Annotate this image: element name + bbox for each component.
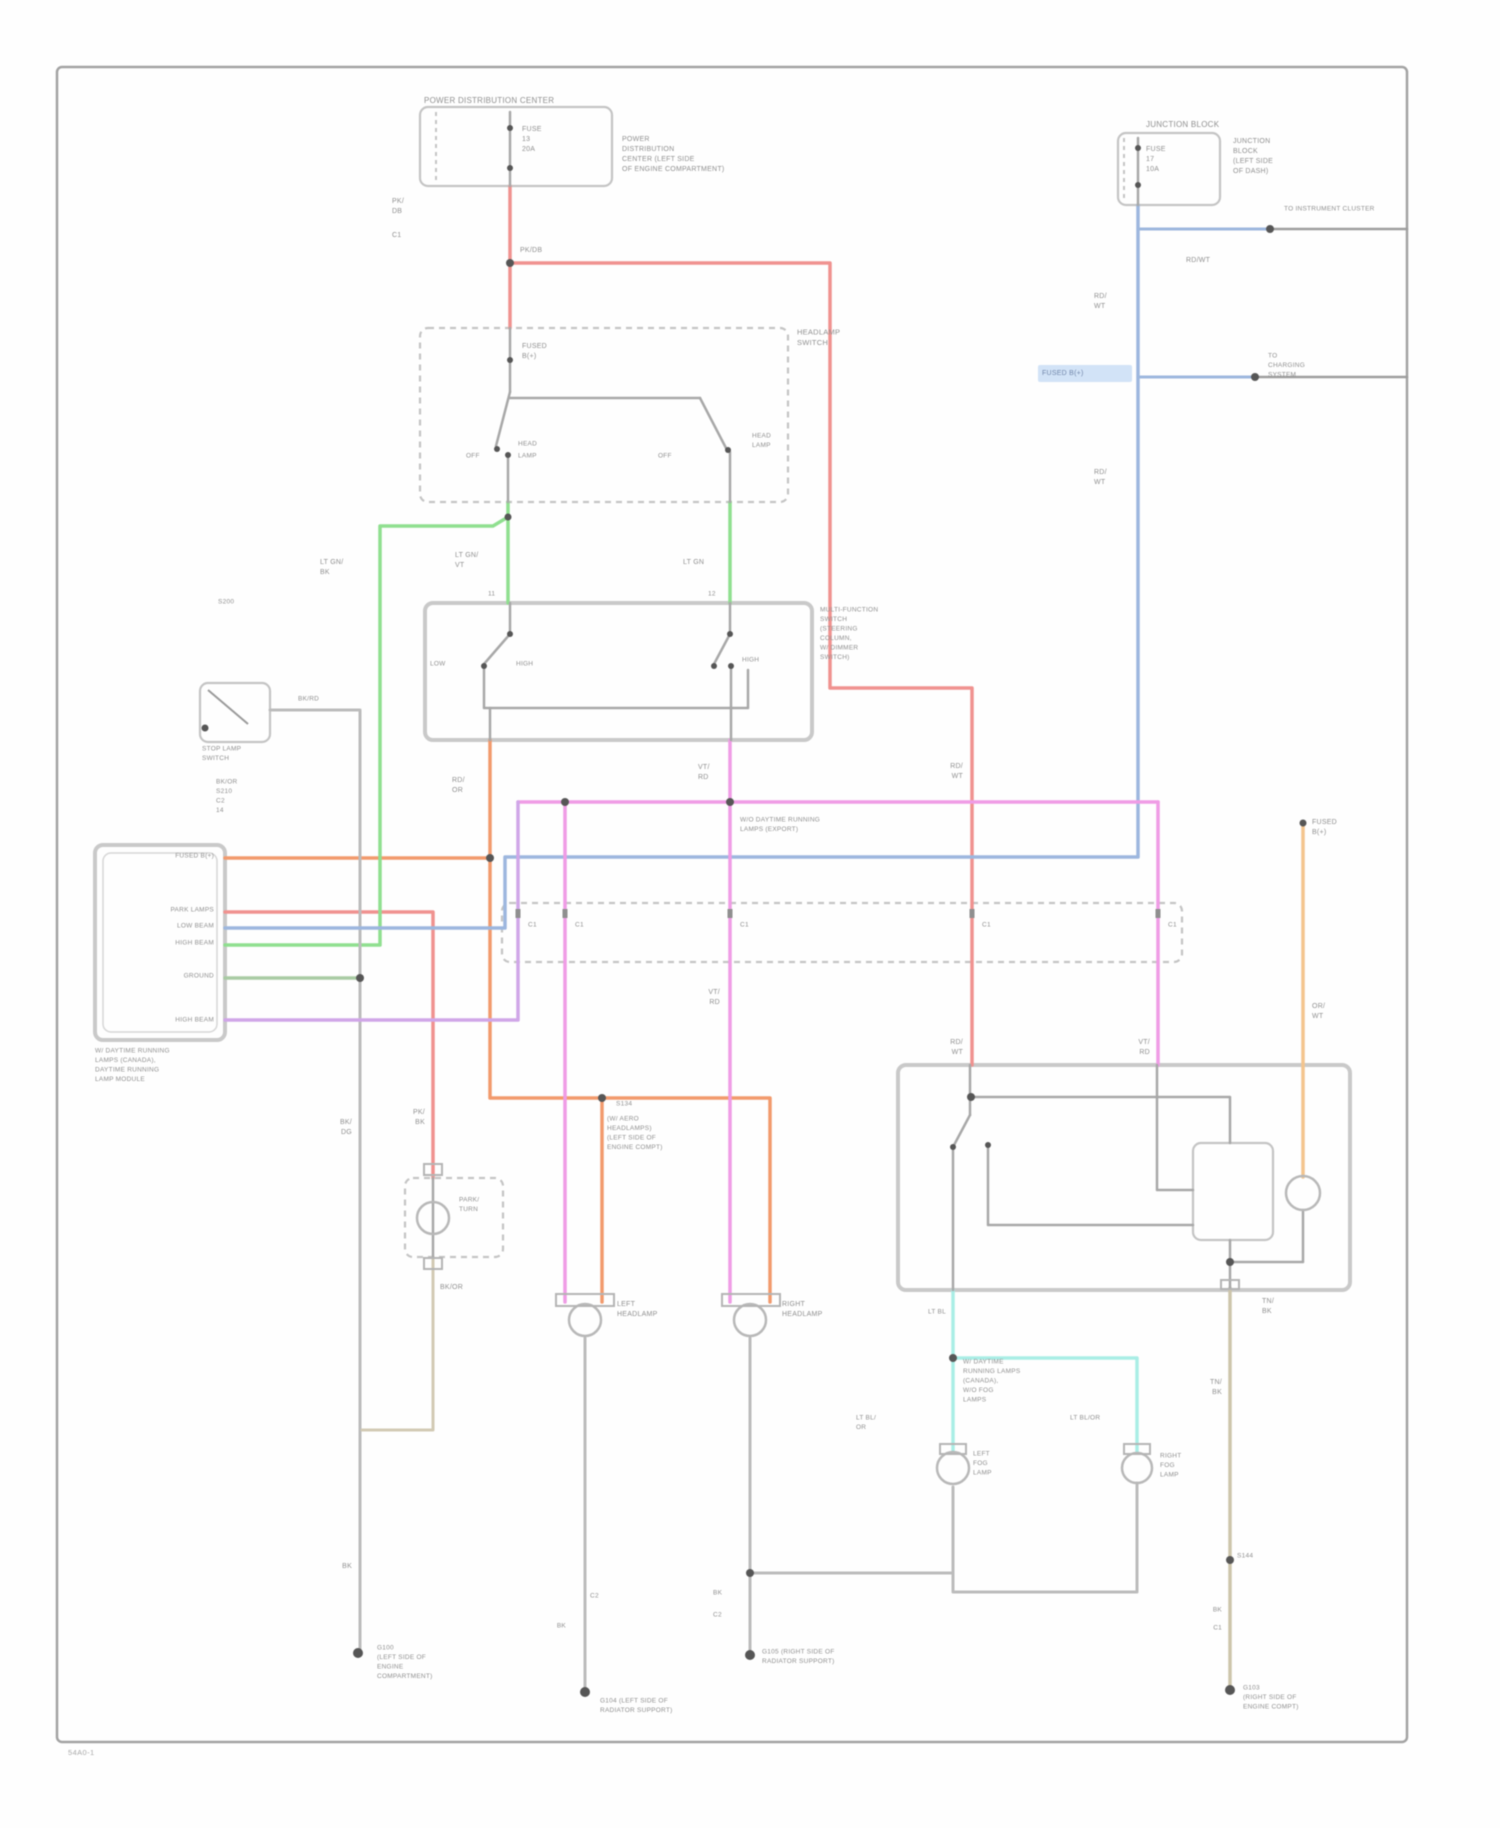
diagram-label-51-3: LAMP MODULE	[95, 1076, 145, 1083]
diagram-label-58-0: BK/OR	[440, 1284, 463, 1291]
diagram-label-56-1: DG	[341, 1129, 352, 1136]
diagram-label-24-0: LT GN	[683, 559, 704, 566]
diagram-label-62-0: S134	[616, 1101, 632, 1108]
diagram-label-19-0: LAMP	[518, 453, 537, 460]
diagram-label-63-1: HEADLAMPS)	[607, 1125, 652, 1132]
diagram-label-57-0: PK/	[413, 1109, 425, 1116]
diagram-label-40-0: RD/	[950, 763, 963, 770]
diagram-label-83-0: G103	[1243, 1685, 1260, 1692]
wire-blue-main	[225, 205, 1138, 928]
diagram-label-12-1: WT	[1094, 479, 1106, 486]
diagram-label-78-0: TN/	[1262, 1298, 1274, 1305]
diagram-label-66-0: C2	[590, 1593, 599, 1600]
diagram-label-53-0: STOP LAMP	[202, 746, 241, 753]
diagram-label-3-1: DB	[392, 208, 402, 215]
junction-dot-5	[356, 974, 364, 982]
wire-tan-park-out	[362, 1257, 433, 1430]
diagram-label-7-3: OF DASH)	[1233, 168, 1268, 175]
diagram-label-25-0: MULTI-FUNCTION	[820, 607, 878, 614]
wire-mfs-int-3	[484, 668, 748, 708]
junction-dot-27	[985, 1142, 991, 1148]
diagram-label-76-1: FOG	[973, 1460, 988, 1467]
diagram-label-72-0: LT BL	[928, 1309, 946, 1316]
diagram-label-64-1: HEADLAMP	[617, 1311, 658, 1318]
wire-fog-int-4	[988, 1145, 1193, 1225]
diagram-label-32-0: VT/	[698, 764, 710, 771]
diagram-label-15-0: HEADLAMP	[797, 328, 840, 337]
diagram-label-52-3: 14	[216, 807, 224, 814]
diagram-label-44-1: WT	[1312, 1013, 1324, 1020]
junction-dot-28	[950, 1144, 956, 1150]
diagram-label-50-0: HIGH BEAM	[175, 1017, 214, 1024]
diagram-label-83-2: ENGINE COMPT)	[1243, 1704, 1299, 1711]
diagram-label-82-0: C1	[1213, 1625, 1222, 1632]
diagram-label-30-0: HIGH	[742, 657, 759, 664]
diagram-label-57-1: BK	[415, 1119, 425, 1126]
diagram-label-11-0: RD/	[1094, 293, 1107, 300]
diagram-label-73-3: W/O FOG	[963, 1387, 994, 1394]
diagram-label-69-0: C2	[713, 1612, 722, 1619]
diagram-label-77-2: LAMP	[1160, 1472, 1179, 1479]
diagram-label-51-2: DAYTIME RUNNING	[95, 1067, 159, 1074]
page-footer-code: 54A0-1	[68, 1748, 95, 1757]
diagram-label-44-0: OR/	[1312, 1003, 1325, 1010]
junction-dot-24	[481, 663, 487, 669]
junction-dot-13	[505, 514, 512, 521]
diagram-label-77-1: FOG	[1160, 1462, 1175, 1469]
diagram-label-75-0: LT BL/OR	[1070, 1415, 1100, 1422]
diagram-label-51-0: W/ DAYTIME RUNNING	[95, 1048, 170, 1055]
diagram-label-54-0: S200	[218, 599, 234, 606]
junction-dot-31	[1135, 145, 1141, 151]
diagram-label-17-0: OFF	[466, 453, 480, 460]
diagram-label-14-0: FUSED B(+)	[1042, 370, 1084, 377]
box-park-turn-lamp	[405, 1178, 503, 1257]
diagram-label-74-1: OR	[856, 1424, 866, 1431]
diagram-label-55-0: BK/RD	[298, 696, 319, 703]
diagram-label-22-0: LT GN/	[320, 559, 343, 566]
diagram-label-51-1: LAMPS (CANADA),	[95, 1057, 156, 1064]
diagram-label-2-1: 13	[522, 136, 530, 143]
junction-dot-11	[1251, 373, 1259, 381]
diagram-label-60-3: COMPARTMENT)	[377, 1673, 432, 1680]
box-fog-lamp-relay	[1193, 1143, 1273, 1240]
diagram-label-42-0: VT/	[1138, 1039, 1150, 1046]
diagram-label-74-0: LT BL/	[856, 1415, 876, 1422]
connector-pin-2	[728, 909, 733, 918]
wire-fog-int-2	[970, 1097, 1230, 1143]
diagram-label-41-0: RD/	[950, 1039, 963, 1046]
diagram-label-60-2: ENGINE	[377, 1664, 404, 1671]
diagram-label-41-1: WT	[952, 1049, 964, 1056]
switch-blade-1	[700, 398, 726, 448]
diagram-label-7-0: JUNCTION	[1233, 138, 1270, 145]
diagram-label-49-0: GROUND	[184, 973, 214, 980]
diagram-label-73-1: RUNNING LAMPS	[963, 1368, 1021, 1375]
diagram-label-25-5: SWITCH)	[820, 654, 850, 661]
diagram-label-28-0: LOW	[430, 661, 446, 668]
diagram-label-12-0: RD/	[1094, 469, 1107, 476]
switch-blade-2	[484, 634, 510, 664]
diagram-label-46-0: PARK LAMPS	[170, 907, 214, 914]
junction-dot-29	[507, 125, 513, 131]
diagram-label-77-0: RIGHT	[1160, 1453, 1181, 1460]
diagram-label-33-0: W/O DAYTIME RUNNING	[740, 817, 820, 824]
diode-mark	[208, 690, 248, 724]
junction-dot-15	[580, 1687, 590, 1697]
diagram-label-13-0: TO	[1268, 353, 1277, 360]
box-connector-row	[502, 903, 1182, 962]
diagram-label-81-0: BK	[1213, 1607, 1223, 1614]
diagram-label-16-0: FUSED	[522, 343, 547, 350]
junction-dot-34	[1300, 820, 1307, 827]
junction-dot-21	[725, 447, 731, 453]
diagram-label-60-0: G100	[377, 1645, 394, 1652]
diagram-label-52-0: BK/OR	[216, 779, 238, 786]
wire-gray-diode-ground	[270, 710, 360, 1653]
diagram-label-4-0: C1	[392, 232, 401, 239]
switch-blade-3	[714, 634, 730, 664]
diagram-label-8-0: FUSE	[1146, 146, 1166, 153]
diagram-label-15-1: SWITCH	[797, 338, 828, 347]
diagram-label-32-1: RD	[698, 774, 709, 781]
diagram-label-25-3: COLUMN,	[820, 635, 852, 642]
lamp-symbol-right-headlamp-bulb	[734, 1304, 766, 1336]
lamp-symbol-fog-indicator-bulb	[1286, 1176, 1320, 1210]
wire-green-ecm-loop	[225, 517, 508, 945]
diagram-label-65-0: RIGHT	[782, 1301, 806, 1308]
junction-dot-1	[486, 854, 494, 862]
diagram-label-26-0: 11	[488, 591, 495, 598]
diagram-label-31-0: RD/	[452, 777, 465, 784]
junction-dot-26	[711, 663, 717, 669]
diagram-label-65-1: HEADLAMP	[782, 1311, 823, 1318]
diagram-label-53-1: SWITCH	[202, 755, 229, 762]
junction-dot-23	[727, 631, 733, 637]
diagram-label-10-0: RD/WT	[1186, 257, 1211, 264]
box-power-distribution-center	[420, 107, 612, 186]
diagram-label-35-0: C1	[575, 922, 584, 929]
diagram-label-0-0: POWER DISTRIBUTION CENTER	[424, 96, 554, 105]
diagram-label-9-0: TO INSTRUMENT CLUSTER	[1284, 206, 1375, 213]
diagram-label-73-0: W/ DAYTIME	[963, 1359, 1004, 1366]
diagram-label-76-0: LEFT	[973, 1451, 990, 1458]
diagram-label-33-1: LAMPS (EXPORT)	[740, 826, 798, 833]
diagram-label-25-4: W/ DIMMER	[820, 645, 858, 652]
diagram-label-2-2: 20A	[522, 146, 535, 153]
wire-red-ecm-park	[225, 912, 433, 1178]
connector-pin-3	[970, 909, 975, 918]
junction-dot-30	[507, 165, 513, 171]
diagram-label-13-2: SYSTEM	[1268, 372, 1296, 379]
diagram-label-45-0: FUSED B(+)	[175, 853, 214, 860]
diagram-label-18-0: HEAD	[518, 441, 537, 448]
diagram-label-27-0: 12	[708, 591, 716, 598]
diagram-label-56-0: BK/	[340, 1119, 352, 1126]
junction-dot-2	[598, 1094, 606, 1102]
diagram-border	[57, 67, 1407, 1742]
diagram-label-25-2: (STEERING	[820, 626, 858, 633]
diagram-label-7-1: BLOCK	[1233, 148, 1258, 155]
wire-ground-right-fog	[953, 1483, 1137, 1592]
diagram-label-48-0: HIGH BEAM	[175, 940, 214, 947]
junction-dot-18	[507, 357, 513, 363]
box-headlamp-switch	[420, 328, 788, 502]
junction-dot-7	[1226, 1258, 1234, 1266]
wire-fog-int-5	[1157, 1065, 1193, 1190]
diagram-label-83-1: (RIGHT SIDE OF	[1243, 1694, 1297, 1701]
diagram-label-43-0: FUSED	[1312, 819, 1337, 826]
wire-ground-left-fog	[750, 1487, 953, 1573]
diagram-label-23-1: VT	[455, 562, 465, 569]
diagram-label-79-1: BK	[1212, 1389, 1222, 1396]
junction-dot-20	[505, 452, 511, 458]
diagram-label-52-2: C2	[216, 798, 225, 805]
diagram-label-47-0: LOW BEAM	[177, 923, 214, 930]
junction-dot-6	[949, 1354, 957, 1362]
diagram-label-1-1: DISTRIBUTION	[622, 146, 674, 153]
switch-blade-4	[953, 1115, 970, 1147]
diagram-label-20-1: LAMP	[752, 442, 771, 449]
junction-dot-33	[202, 725, 209, 732]
junction-dot-19	[494, 446, 500, 452]
diagram-label-42-1: RD	[1139, 1049, 1150, 1056]
diagram-label-80-0: S144	[1237, 1553, 1253, 1560]
diagram-label-63-2: (LEFT SIDE OF	[607, 1135, 656, 1142]
diagram-label-67-0: BK	[557, 1623, 567, 1630]
connector-pin-0	[516, 909, 521, 918]
diagram-label-38-0: C1	[1168, 922, 1177, 929]
diagram-label-63-3: ENGINE COMPT)	[607, 1144, 663, 1151]
wire-fog-int-6	[1230, 1210, 1303, 1262]
junction-dot-22	[507, 631, 513, 637]
wiring-diagram-canvas: POWER DISTRIBUTION CENTERPOWERDISTRIBUTI…	[0, 0, 1500, 1828]
lamp-symbol-left-headlamp-bulb	[569, 1304, 601, 1336]
junction-dot-14	[353, 1648, 363, 1658]
diagram-label-3-0: PK/	[392, 198, 404, 205]
diagram-label-23-0: LT GN/	[455, 552, 478, 559]
diagram-label-64-0: LEFT	[617, 1301, 636, 1308]
junction-dot-32	[1135, 182, 1141, 188]
lamp-symbol-right-fog-bulb	[1122, 1453, 1152, 1483]
junction-dot-4	[561, 798, 569, 806]
junction-dot-8	[1226, 1556, 1234, 1564]
diagram-label-1-0: POWER	[622, 136, 650, 143]
diagram-label-68-0: BK	[713, 1590, 723, 1597]
diagram-label-40-1: WT	[952, 773, 964, 780]
diagram-label-76-2: LAMP	[973, 1470, 992, 1477]
diagram-label-59-0: BK	[342, 1563, 352, 1570]
diagram-label-20-0: HEAD	[752, 433, 771, 440]
diagram-label-43-1: B(+)	[1312, 829, 1326, 836]
diagram-label-1-3: OF ENGINE COMPARTMENT)	[622, 166, 724, 173]
diagram-label-63-0: (W/ AERO	[607, 1116, 639, 1123]
junction-dot-9	[967, 1093, 975, 1101]
box-junction-block	[1118, 133, 1220, 205]
diagram-label-34-0: C1	[528, 922, 537, 929]
diagram-label-36-0: C1	[740, 922, 749, 929]
junction-dot-10	[1266, 225, 1274, 233]
diagram-label-73-2: (CANADA),	[963, 1378, 998, 1385]
diagram-label-70-1: RADIATOR SUPPORT)	[600, 1707, 673, 1714]
switch-blade-0	[496, 392, 510, 446]
diagram-label-39-0: VT/	[708, 989, 720, 996]
diagram-label-2-0: FUSE	[522, 126, 542, 133]
junction-dot-3	[726, 798, 734, 806]
diagram-label-16-1: B(+)	[522, 353, 536, 360]
box-fog-lamp-switch	[898, 1065, 1350, 1290]
diagram-label-6-0: JUNCTION BLOCK	[1146, 120, 1220, 129]
diagram-label-60-1: (LEFT SIDE OF	[377, 1654, 426, 1661]
junction-dot-0	[506, 259, 514, 267]
diagram-label-61-0: PARK/	[459, 1197, 479, 1204]
junction-dot-16	[745, 1650, 755, 1660]
diagram-label-70-0: G104 (LEFT SIDE OF	[600, 1698, 668, 1705]
diagram-label-71-1: RADIATOR SUPPORT)	[762, 1658, 835, 1665]
connector-pin-1	[563, 909, 568, 918]
diagram-label-25-1: SWITCH	[820, 616, 847, 623]
diagram-label-22-1: BK	[320, 569, 330, 576]
junction-dot-17	[1225, 1685, 1235, 1695]
diagram-label-71-0: G105 (RIGHT SIDE OF	[762, 1649, 835, 1656]
diagram-label-21-0: OFF	[658, 453, 672, 460]
diagram-label-79-0: TN/	[1210, 1379, 1222, 1386]
junction-dot-25	[728, 663, 734, 669]
wiring-diagram-page: POWER DISTRIBUTION CENTERPOWERDISTRIBUTI…	[0, 0, 1500, 1828]
diagram-label-8-1: 17	[1146, 156, 1154, 163]
diagram-label-11-1: WT	[1094, 303, 1106, 310]
diagram-label-31-1: OR	[452, 787, 463, 794]
diagram-label-73-4: LAMPS	[963, 1397, 987, 1404]
diagram-label-5-0: PK/DB	[520, 247, 542, 254]
diagram-label-8-2: 10A	[1146, 166, 1159, 173]
diagram-label-13-1: CHARGING	[1268, 362, 1305, 369]
connector-pin-4	[1156, 909, 1161, 918]
wire-red-bus	[510, 263, 972, 1065]
diagram-label-52-1: S210	[216, 788, 232, 795]
diagram-label-7-2: (LEFT SIDE	[1233, 158, 1273, 165]
diagram-label-1-2: CENTER (LEFT SIDE	[622, 156, 695, 163]
diagram-label-39-1: RD	[709, 999, 720, 1006]
diagram-label-61-1: TURN	[459, 1206, 478, 1213]
lamp-symbol-left-fog-bulb	[937, 1452, 969, 1484]
junction-dot-12	[746, 1569, 754, 1577]
diagram-label-29-0: HIGH	[516, 661, 533, 668]
wire-orange-lowbeam	[490, 740, 770, 1302]
diagram-label-78-1: BK	[1262, 1308, 1272, 1315]
diagram-label-37-0: C1	[982, 922, 991, 929]
